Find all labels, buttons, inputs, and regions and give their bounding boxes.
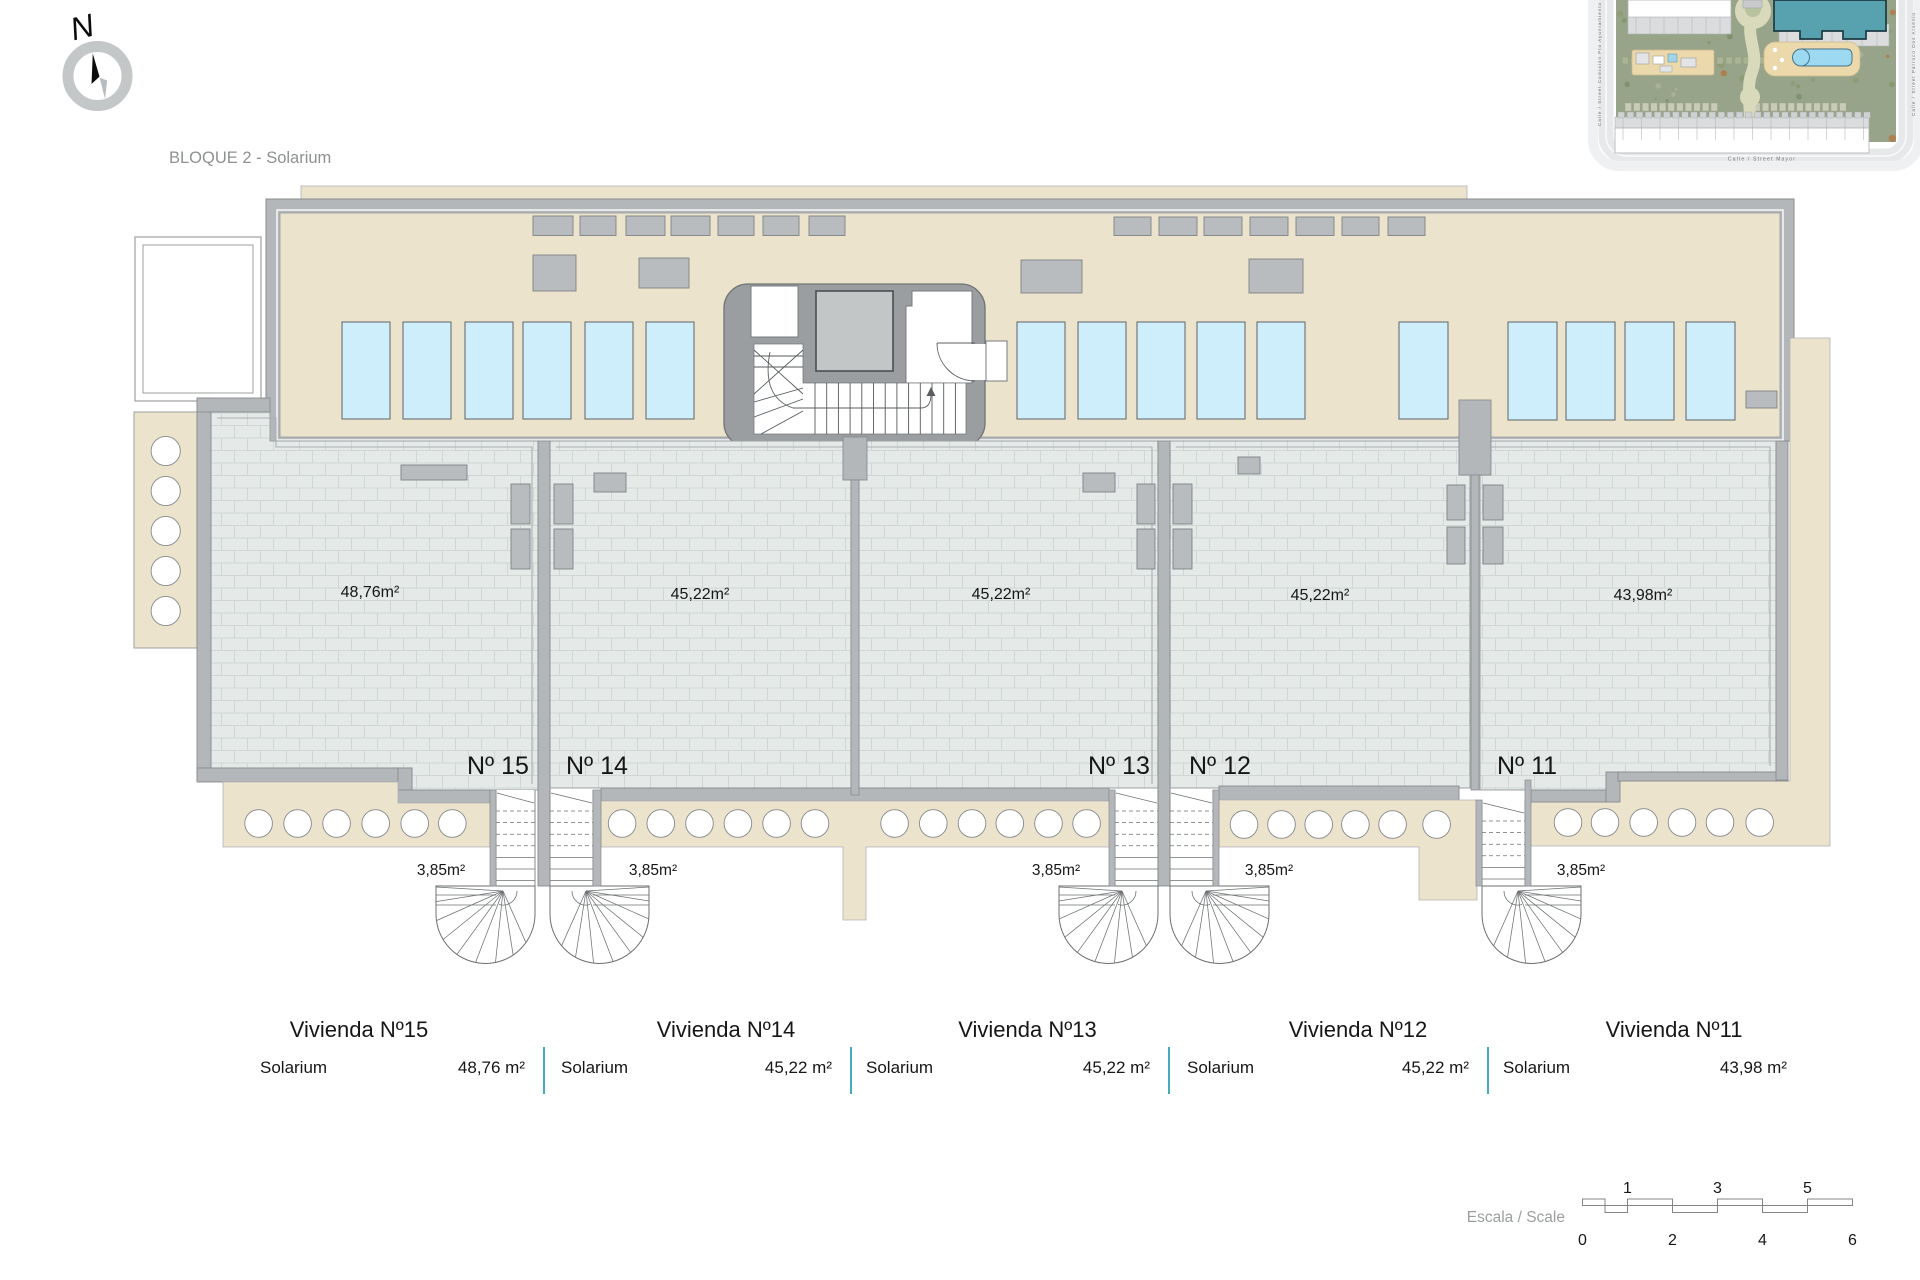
svg-text:48,76m²: 48,76m² <box>341 584 400 601</box>
svg-text:Calle / Street Mayor: Calle / Street Mayor <box>1728 157 1796 163</box>
svg-text:Solarium: Solarium <box>866 1058 933 1077</box>
svg-text:Vivienda Nº13: Vivienda Nº13 <box>958 1017 1097 1042</box>
svg-text:Nº 12: Nº 12 <box>1189 752 1251 780</box>
svg-text:Solarium: Solarium <box>1503 1058 1570 1077</box>
svg-text:0: 0 <box>1578 1232 1587 1249</box>
svg-text:Calle / Street Comisión Pto Ay: Calle / Street Comisión Pto Ayuntamiento <box>1597 2 1602 126</box>
svg-text:45,22m²: 45,22m² <box>1291 587 1350 604</box>
svg-text:45,22m²: 45,22m² <box>972 586 1031 603</box>
svg-text:45,22 m²: 45,22 m² <box>1083 1058 1150 1077</box>
svg-text:48,76 m²: 48,76 m² <box>458 1058 525 1077</box>
svg-text:Nº 14: Nº 14 <box>566 752 628 780</box>
svg-text:Nº 11: Nº 11 <box>1497 752 1557 780</box>
svg-text:43,98 m²: 43,98 m² <box>1720 1058 1787 1077</box>
svg-text:BLOQUE 2 - Solarium: BLOQUE 2 - Solarium <box>169 149 331 167</box>
svg-text:45,22 m²: 45,22 m² <box>1402 1058 1469 1077</box>
svg-text:Escala / Scale: Escala / Scale <box>1467 1209 1565 1226</box>
svg-text:Vivienda Nº12: Vivienda Nº12 <box>1289 1017 1428 1042</box>
svg-text:3,85m²: 3,85m² <box>1557 862 1605 879</box>
svg-text:3,85m²: 3,85m² <box>1245 862 1293 879</box>
svg-text:Calle / Street Parroco Dos Ar: Calle / Street Parroco Dos Arsenio <box>1911 12 1916 116</box>
svg-text:6: 6 <box>1848 1232 1857 1249</box>
svg-text:1: 1 <box>1623 1180 1632 1197</box>
svg-text:43,98m²: 43,98m² <box>1614 587 1673 604</box>
svg-text:3: 3 <box>1713 1180 1722 1197</box>
svg-text:Solarium: Solarium <box>260 1058 327 1077</box>
svg-text:5: 5 <box>1803 1180 1812 1197</box>
svg-text:3,85m²: 3,85m² <box>1032 862 1080 879</box>
svg-text:Nº 15: Nº 15 <box>467 752 529 780</box>
svg-text:4: 4 <box>1758 1232 1767 1249</box>
svg-text:Nº 13: Nº 13 <box>1088 752 1150 780</box>
svg-text:3,85m²: 3,85m² <box>417 862 465 879</box>
svg-text:Vivienda Nº15: Vivienda Nº15 <box>290 1017 429 1042</box>
svg-text:45,22m²: 45,22m² <box>671 586 730 603</box>
svg-text:3,85m²: 3,85m² <box>629 862 677 879</box>
svg-text:Solarium: Solarium <box>1187 1058 1254 1077</box>
svg-text:45,22 m²: 45,22 m² <box>765 1058 832 1077</box>
svg-text:Vivienda Nº11: Vivienda Nº11 <box>1606 1017 1743 1042</box>
svg-text:Vivienda Nº14: Vivienda Nº14 <box>657 1017 796 1042</box>
svg-text:Solarium: Solarium <box>561 1058 628 1077</box>
svg-text:2: 2 <box>1668 1232 1677 1249</box>
